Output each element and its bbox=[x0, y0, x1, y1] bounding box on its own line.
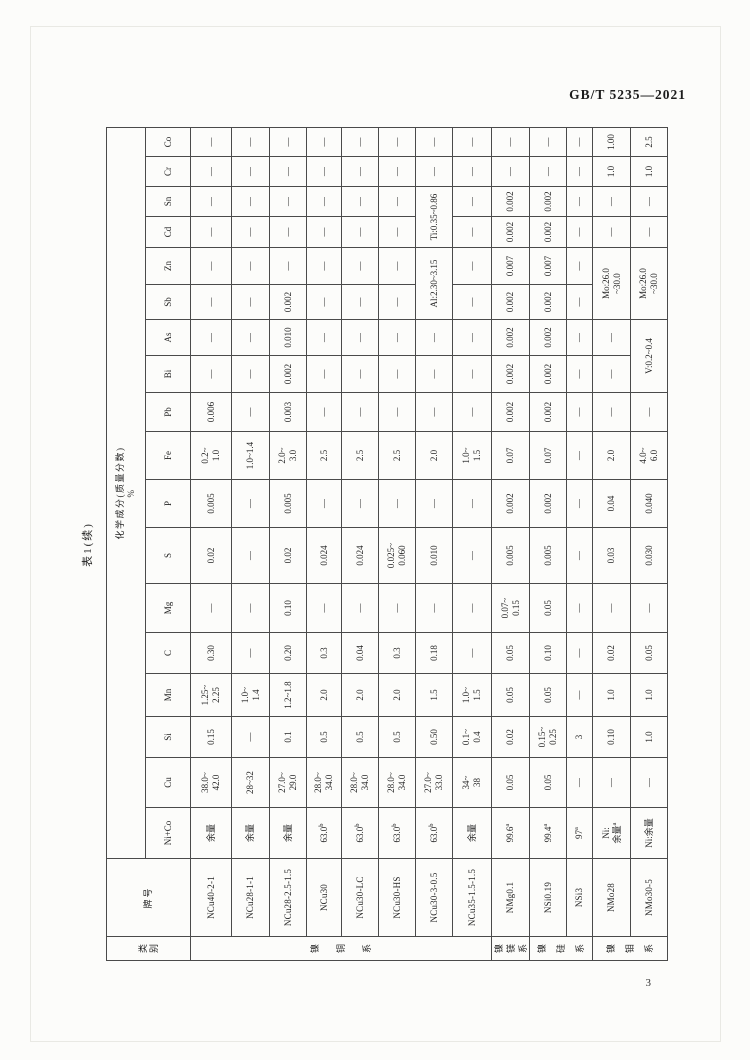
value-cell: 2.0 bbox=[593, 432, 631, 480]
value-cell: 2.0 bbox=[379, 674, 416, 717]
value-cell: 28~32 bbox=[232, 758, 270, 808]
grade-cell: NMo28 bbox=[593, 859, 631, 937]
value-cell: 1.0~1.4 bbox=[232, 674, 270, 717]
value-cell: — bbox=[191, 127, 232, 156]
value-cell: 0.02 bbox=[270, 528, 307, 584]
value-cell: — bbox=[342, 393, 379, 432]
value-cell: — bbox=[191, 157, 232, 187]
designation-header: 牌号 bbox=[107, 859, 191, 937]
value-cell: 0.18 bbox=[416, 633, 453, 674]
value-cell: 0.005 bbox=[530, 528, 567, 584]
value-cell: 0.07 bbox=[530, 432, 567, 480]
value-cell: 余量 bbox=[191, 808, 232, 859]
value-cell: 0.002 bbox=[492, 356, 530, 393]
value-cell: 1.25~2.25 bbox=[191, 674, 232, 717]
value-cell: 2.5 bbox=[342, 432, 379, 480]
value-cell: 0.5 bbox=[307, 717, 342, 758]
value-cell: — bbox=[567, 320, 593, 356]
grade-cell: NMg0.1 bbox=[492, 859, 530, 937]
element-header-s: S bbox=[146, 528, 191, 584]
element-header-mg: Mg bbox=[146, 584, 191, 633]
grade-row: NSi397a—3——————————————— bbox=[567, 127, 593, 960]
value-cell: — bbox=[379, 584, 416, 633]
value-cell: — bbox=[379, 356, 416, 393]
value-cell: 0.04 bbox=[593, 480, 631, 528]
value-cell: — bbox=[593, 356, 631, 393]
value-cell: — bbox=[191, 356, 232, 393]
value-cell: 1.0~1.5 bbox=[453, 674, 492, 717]
element-header-si: Si bbox=[146, 717, 191, 758]
value-cell: 0.15~0.25 bbox=[530, 717, 567, 758]
value-cell: — bbox=[453, 356, 492, 393]
element-header-pb: Pb bbox=[146, 393, 191, 432]
value-cell: — bbox=[191, 187, 232, 217]
value-cell: 28.0~34.0 bbox=[379, 758, 416, 808]
value-cell: — bbox=[631, 187, 668, 217]
value-cell: — bbox=[567, 584, 593, 633]
value-cell: 2.0 bbox=[342, 674, 379, 717]
value-cell: — bbox=[270, 187, 307, 217]
value-cell: 0.002 bbox=[530, 217, 567, 248]
element-header-ni-co: Ni+Co bbox=[146, 808, 191, 859]
value-cell: — bbox=[307, 320, 342, 356]
element-header-fe: Fe bbox=[146, 432, 191, 480]
value-cell: — bbox=[631, 758, 668, 808]
value-cell: 0.15 bbox=[191, 717, 232, 758]
value-cell: — bbox=[232, 320, 270, 356]
grade-row: 镍硅系NSi0.1999.4a0.050.15~0.250.050.100.05… bbox=[530, 127, 567, 960]
value-cell: 0.007 bbox=[530, 248, 567, 285]
value-cell: 0.1~0.4 bbox=[453, 717, 492, 758]
value-cell: 0.006 bbox=[191, 393, 232, 432]
grade-row: NCu28-1-1余量28~32—1.0~1.4————1.0~1.4—————… bbox=[232, 127, 270, 960]
value-cell: 0.002 bbox=[530, 480, 567, 528]
value-cell: — bbox=[530, 127, 567, 156]
page-number: 3 bbox=[646, 977, 652, 989]
value-cell: — bbox=[342, 248, 379, 285]
value-cell: — bbox=[567, 633, 593, 674]
value-cell: 1.0 bbox=[631, 674, 668, 717]
element-header-cr: Cr bbox=[146, 157, 191, 187]
value-cell: — bbox=[307, 248, 342, 285]
rotated-table-inner: 表1(续) 类别牌号化学成分(质量分数)%Ni+CoCuSiMnCMgSPFeP… bbox=[77, 128, 667, 961]
value-cell: — bbox=[270, 248, 307, 285]
grade-row: NCu28-2.5-1.5余量27.0~29.00.11.2~1.80.200.… bbox=[270, 127, 307, 960]
value-cell: — bbox=[453, 393, 492, 432]
value-cell: 1.00 bbox=[593, 127, 631, 156]
grade-cell: NCu30-HS bbox=[379, 859, 416, 937]
value-cell: 0.5 bbox=[379, 717, 416, 758]
value-cell: 0.2~1.0 bbox=[191, 432, 232, 480]
value-cell: 0.007 bbox=[492, 248, 530, 285]
value-cell: — bbox=[593, 187, 631, 217]
value-cell: 1.5 bbox=[416, 674, 453, 717]
value-cell: — bbox=[416, 320, 453, 356]
value-cell: — bbox=[567, 187, 593, 217]
grade-row: NCu30-3-0.563.0b27.0~33.00.501.50.18—0.0… bbox=[416, 127, 453, 960]
value-cell: — bbox=[631, 217, 668, 248]
value-cell: 0.20 bbox=[270, 633, 307, 674]
value-cell: — bbox=[270, 127, 307, 156]
value-cell: 27.0~29.0 bbox=[270, 758, 307, 808]
grade-row: NMo30-5Ni:余量—1.01.00.05—0.0300.0404.0~6.… bbox=[631, 127, 668, 960]
value-cell: 4.0~6.0 bbox=[631, 432, 668, 480]
value-cell: Mo:26.0~30.0 bbox=[593, 248, 631, 320]
value-cell: — bbox=[379, 393, 416, 432]
value-cell: — bbox=[593, 584, 631, 633]
grade-cell: NCu30 bbox=[307, 859, 342, 937]
grade-row: 镍镁系NMg0.199.6a0.050.020.050.050.07~0.150… bbox=[492, 127, 530, 960]
element-header-sn: Sn bbox=[146, 187, 191, 217]
element-header-co: Co bbox=[146, 127, 191, 156]
value-cell: 0.04 bbox=[342, 633, 379, 674]
value-cell: — bbox=[307, 127, 342, 156]
value-cell: — bbox=[307, 480, 342, 528]
value-cell: 38.0~42.0 bbox=[191, 758, 232, 808]
category-cell: 镍硅系 bbox=[530, 937, 593, 961]
value-cell: — bbox=[453, 584, 492, 633]
value-cell: 0.002 bbox=[530, 320, 567, 356]
value-cell: 2.0~3.0 bbox=[270, 432, 307, 480]
value-cell: 0.02 bbox=[191, 528, 232, 584]
value-cell: — bbox=[416, 584, 453, 633]
value-cell: — bbox=[342, 157, 379, 187]
value-cell: 0.5 bbox=[342, 717, 379, 758]
grade-row: 镍钼系NMo28Ni:余量a—0.101.00.02—0.030.042.0——… bbox=[593, 127, 631, 960]
value-cell: — bbox=[567, 528, 593, 584]
value-cell: — bbox=[416, 127, 453, 156]
category-cell: 镍铜系 bbox=[191, 937, 492, 961]
value-cell: — bbox=[232, 248, 270, 285]
value-cell: 0.05 bbox=[530, 674, 567, 717]
value-cell: — bbox=[342, 356, 379, 393]
value-cell: — bbox=[567, 127, 593, 156]
value-cell: 0.010 bbox=[270, 320, 307, 356]
value-cell: — bbox=[379, 480, 416, 528]
value-cell: 1.0 bbox=[593, 674, 631, 717]
grade-row: 镍铜系NCu40-2-1余量38.0~42.00.151.25~2.250.30… bbox=[191, 127, 232, 960]
value-cell: 1.0 bbox=[631, 157, 668, 187]
value-cell: 1.0 bbox=[631, 717, 668, 758]
value-cell: 余量 bbox=[232, 808, 270, 859]
grade-cell: NCu30-LC bbox=[342, 859, 379, 937]
value-cell: 0.10 bbox=[593, 717, 631, 758]
value-cell: — bbox=[270, 217, 307, 248]
value-cell: 27.0~33.0 bbox=[416, 758, 453, 808]
value-cell: 0.002 bbox=[492, 393, 530, 432]
value-cell: 0.05 bbox=[492, 633, 530, 674]
value-cell: 28.0~34.0 bbox=[342, 758, 379, 808]
value-cell: 0.07 bbox=[492, 432, 530, 480]
value-cell: — bbox=[593, 320, 631, 356]
value-cell: 余量 bbox=[270, 808, 307, 859]
grade-row: NCu30-LC63.0b28.0~34.00.52.00.04—0.024—2… bbox=[342, 127, 379, 960]
value-cell: 63.0b bbox=[379, 808, 416, 859]
grade-cell: NSi0.19 bbox=[530, 859, 567, 937]
category-header: 类别 bbox=[107, 937, 191, 961]
value-cell: 0.05 bbox=[492, 758, 530, 808]
value-cell: 0.002 bbox=[530, 393, 567, 432]
grade-cell: NCu35-1.5-1.5 bbox=[453, 859, 492, 937]
category-cell: 镍镁系 bbox=[492, 937, 530, 961]
value-cell: — bbox=[342, 480, 379, 528]
element-header-bi: Bi bbox=[146, 356, 191, 393]
element-header-as: As bbox=[146, 320, 191, 356]
value-cell: — bbox=[416, 157, 453, 187]
element-header-sb: Sb bbox=[146, 285, 191, 320]
value-cell: — bbox=[232, 393, 270, 432]
value-cell: 0.05 bbox=[492, 674, 530, 717]
value-cell: 0.002 bbox=[530, 285, 567, 320]
value-cell: 0.50 bbox=[416, 717, 453, 758]
composition-header: 化学成分(质量分数)% bbox=[107, 127, 146, 858]
value-cell: Al:2.30~3.15 bbox=[416, 248, 453, 320]
value-cell: — bbox=[191, 584, 232, 633]
value-cell: — bbox=[232, 217, 270, 248]
value-cell: — bbox=[631, 393, 668, 432]
value-cell: — bbox=[191, 217, 232, 248]
value-cell: — bbox=[307, 356, 342, 393]
value-cell: 1.0~1.5 bbox=[453, 432, 492, 480]
value-cell: 0.025~0.060 bbox=[379, 528, 416, 584]
value-cell: Ni:余量a bbox=[593, 808, 631, 859]
value-cell: Ni:余量 bbox=[631, 808, 668, 859]
value-cell: 0.3 bbox=[379, 633, 416, 674]
value-cell: 0.03 bbox=[593, 528, 631, 584]
value-cell: — bbox=[567, 674, 593, 717]
value-cell: 0.10 bbox=[530, 633, 567, 674]
value-cell: — bbox=[379, 187, 416, 217]
value-cell: 2.5 bbox=[379, 432, 416, 480]
value-cell: — bbox=[232, 584, 270, 633]
element-header-p: P bbox=[146, 480, 191, 528]
composition-table: 类别牌号化学成分(质量分数)%Ni+CoCuSiMnCMgSPFePbBiAsS… bbox=[106, 127, 668, 961]
value-cell: 0.005 bbox=[191, 480, 232, 528]
value-cell: 0.05 bbox=[530, 584, 567, 633]
value-cell: — bbox=[453, 248, 492, 285]
grade-row: NCu35-1.5-1.5余量34~380.1~0.41.0~1.5————1.… bbox=[453, 127, 492, 960]
value-cell: — bbox=[307, 584, 342, 633]
value-cell: 0.002 bbox=[270, 285, 307, 320]
value-cell: 3 bbox=[567, 717, 593, 758]
grade-cell: NMo30-5 bbox=[631, 859, 668, 937]
value-cell: — bbox=[492, 157, 530, 187]
value-cell: 0.002 bbox=[530, 187, 567, 217]
value-cell: — bbox=[567, 393, 593, 432]
value-cell: 63.0b bbox=[342, 808, 379, 859]
value-cell: 0.005 bbox=[270, 480, 307, 528]
table-caption: 表1(续) bbox=[77, 128, 99, 961]
value-cell: — bbox=[453, 285, 492, 320]
value-cell: 0.30 bbox=[191, 633, 232, 674]
value-cell: — bbox=[379, 285, 416, 320]
value-cell: — bbox=[232, 633, 270, 674]
value-cell: 0.3 bbox=[307, 633, 342, 674]
value-cell: — bbox=[530, 157, 567, 187]
value-cell: — bbox=[307, 285, 342, 320]
value-cell: 0.07~0.15 bbox=[492, 584, 530, 633]
element-header-mn: Mn bbox=[146, 674, 191, 717]
value-cell: — bbox=[453, 528, 492, 584]
value-cell: — bbox=[191, 248, 232, 285]
value-cell: — bbox=[567, 356, 593, 393]
value-cell: — bbox=[342, 584, 379, 633]
element-header-cd: Cd bbox=[146, 217, 191, 248]
value-cell: 0.02 bbox=[492, 717, 530, 758]
value-cell: — bbox=[232, 480, 270, 528]
value-cell: — bbox=[453, 217, 492, 248]
value-cell: — bbox=[307, 187, 342, 217]
value-cell: — bbox=[307, 217, 342, 248]
element-header-zn: Zn bbox=[146, 248, 191, 285]
grade-cell: NCu40-2-1 bbox=[191, 859, 232, 937]
value-cell: 2.5 bbox=[631, 127, 668, 156]
value-cell: 63.0b bbox=[416, 808, 453, 859]
value-cell: — bbox=[191, 285, 232, 320]
value-cell: 0.005 bbox=[492, 528, 530, 584]
value-cell: — bbox=[232, 528, 270, 584]
value-cell: 1.0 bbox=[593, 157, 631, 187]
value-cell: — bbox=[567, 285, 593, 320]
value-cell: — bbox=[232, 356, 270, 393]
value-cell: — bbox=[379, 157, 416, 187]
value-cell: — bbox=[567, 480, 593, 528]
value-cell: — bbox=[232, 717, 270, 758]
value-cell: 0.002 bbox=[270, 356, 307, 393]
grade-row: NCu30-HS63.0b28.0~34.00.52.00.3—0.025~0.… bbox=[379, 127, 416, 960]
value-cell: — bbox=[270, 157, 307, 187]
value-cell: Ti:0.35~0.86 bbox=[416, 187, 453, 248]
value-cell: — bbox=[342, 217, 379, 248]
grade-cell: NSi3 bbox=[567, 859, 593, 937]
value-cell: 0.002 bbox=[530, 356, 567, 393]
rotated-table-block: 表1(续) 类别牌号化学成分(质量分数)%Ni+CoCuSiMnCMgSPFeP… bbox=[77, 128, 667, 961]
value-cell: — bbox=[342, 320, 379, 356]
value-cell: 0.10 bbox=[270, 584, 307, 633]
doc-number: GB/T 5235—2021 bbox=[569, 87, 686, 103]
value-cell: — bbox=[379, 248, 416, 285]
value-cell: — bbox=[307, 393, 342, 432]
value-cell: — bbox=[416, 356, 453, 393]
value-cell: — bbox=[232, 157, 270, 187]
value-cell: 0.02 bbox=[593, 633, 631, 674]
value-cell: — bbox=[232, 127, 270, 156]
value-cell: 0.030 bbox=[631, 528, 668, 584]
value-cell: — bbox=[567, 157, 593, 187]
value-cell: 99.6a bbox=[492, 808, 530, 859]
value-cell: — bbox=[232, 285, 270, 320]
value-cell: — bbox=[567, 432, 593, 480]
value-cell: 余量 bbox=[453, 808, 492, 859]
value-cell: — bbox=[416, 393, 453, 432]
grade-row: NCu3063.0b28.0~34.00.52.00.3—0.024—2.5——… bbox=[307, 127, 342, 960]
value-cell: — bbox=[342, 285, 379, 320]
value-cell: — bbox=[453, 633, 492, 674]
value-cell: — bbox=[453, 480, 492, 528]
value-cell: 0.024 bbox=[342, 528, 379, 584]
value-cell: — bbox=[567, 758, 593, 808]
value-cell: 0.024 bbox=[307, 528, 342, 584]
value-cell: 2.0 bbox=[307, 674, 342, 717]
value-cell: — bbox=[342, 127, 379, 156]
value-cell: 34~38 bbox=[453, 758, 492, 808]
value-cell: 2.0 bbox=[416, 432, 453, 480]
category-cell: 镍钼系 bbox=[593, 937, 668, 961]
value-cell: — bbox=[379, 217, 416, 248]
value-cell: — bbox=[453, 157, 492, 187]
value-cell: 0.002 bbox=[492, 320, 530, 356]
grade-cell: NCu30-3-0.5 bbox=[416, 859, 453, 937]
value-cell: — bbox=[567, 248, 593, 285]
value-cell: — bbox=[342, 187, 379, 217]
element-header-cu: Cu bbox=[146, 758, 191, 808]
value-cell: 1.0~1.4 bbox=[232, 432, 270, 480]
value-cell: 2.5 bbox=[307, 432, 342, 480]
value-cell: 0.002 bbox=[492, 285, 530, 320]
value-cell: 0.040 bbox=[631, 480, 668, 528]
element-header-c: C bbox=[146, 633, 191, 674]
value-cell: 0.05 bbox=[631, 633, 668, 674]
value-cell: — bbox=[631, 584, 668, 633]
value-cell: 63.0b bbox=[307, 808, 342, 859]
value-cell: — bbox=[593, 758, 631, 808]
value-cell: — bbox=[453, 320, 492, 356]
value-cell: — bbox=[593, 217, 631, 248]
value-cell: — bbox=[416, 480, 453, 528]
value-cell: Mo:26.0~30.0 bbox=[631, 248, 668, 320]
value-cell: V:0.2~0.4 bbox=[631, 320, 668, 393]
grade-cell: NCu28-2.5-1.5 bbox=[270, 859, 307, 937]
value-cell: 1.2~1.8 bbox=[270, 674, 307, 717]
value-cell: 0.05 bbox=[530, 758, 567, 808]
value-cell: 0.1 bbox=[270, 717, 307, 758]
value-cell: 0.002 bbox=[492, 480, 530, 528]
value-cell: — bbox=[492, 127, 530, 156]
value-cell: — bbox=[567, 217, 593, 248]
value-cell: — bbox=[191, 320, 232, 356]
value-cell: 0.003 bbox=[270, 393, 307, 432]
value-cell: — bbox=[593, 393, 631, 432]
value-cell: — bbox=[379, 320, 416, 356]
value-cell: — bbox=[379, 127, 416, 156]
value-cell: — bbox=[232, 187, 270, 217]
value-cell: 28.0~34.0 bbox=[307, 758, 342, 808]
value-cell: 0.002 bbox=[492, 217, 530, 248]
value-cell: — bbox=[453, 187, 492, 217]
value-cell: 0.002 bbox=[492, 187, 530, 217]
value-cell: — bbox=[307, 157, 342, 187]
value-cell: 97a bbox=[567, 808, 593, 859]
value-cell: 99.4a bbox=[530, 808, 567, 859]
value-cell: — bbox=[453, 127, 492, 156]
grade-cell: NCu28-1-1 bbox=[232, 859, 270, 937]
value-cell: 0.010 bbox=[416, 528, 453, 584]
